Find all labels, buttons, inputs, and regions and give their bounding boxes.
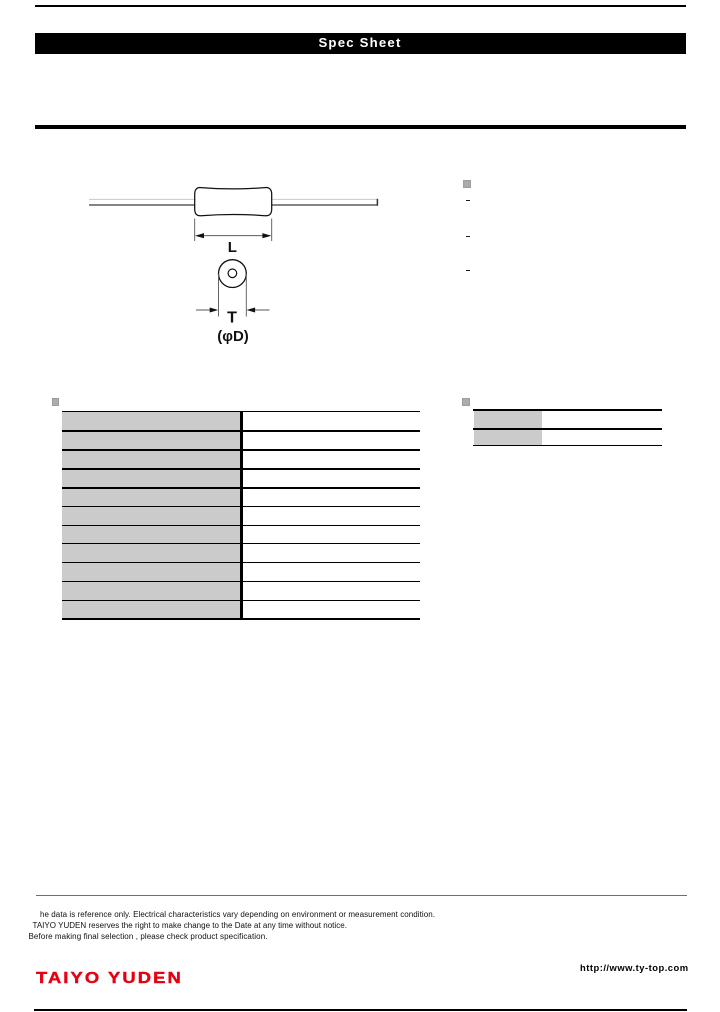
svg-text:L: L	[228, 239, 237, 256]
svg-text:T: T	[227, 309, 237, 326]
svg-text:(φD): (φD)	[217, 328, 249, 345]
